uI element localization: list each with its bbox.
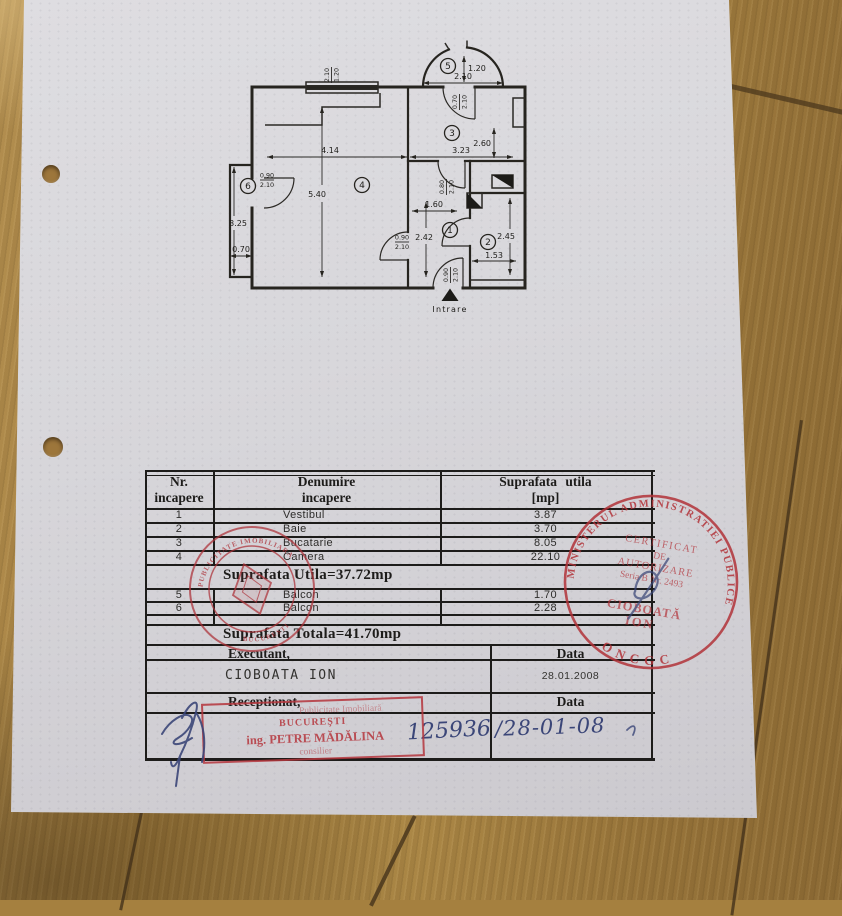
floor-plan-drawing: 4.14 5.40 3.23 2.60 1.60 2.42 2.45 1.53 … [220,30,540,330]
table-border [145,470,655,472]
row-nr: 6 [145,602,213,615]
room-number-4: 4 [355,178,370,193]
row-area: 3.87 [440,509,651,522]
row-area: 22.10 [440,551,651,564]
suprafata-utila-line: Suprafata Utila=37.72mp [223,567,648,584]
top-right-closet [513,98,525,127]
window-recess [265,93,380,125]
header-nr: Nr.incapere [145,474,213,506]
row-nr: 1 [145,509,213,522]
svg-text:2.10: 2.10 [395,243,409,251]
svg-text:0.70: 0.70 [451,95,459,109]
row-area: 3.70 [440,523,651,536]
dim-242: 2.42 [415,233,433,242]
dim-325: 3.25 [229,219,247,228]
row-nr: 2 [145,523,213,536]
svg-text:2.10: 2.10 [448,180,456,194]
dim-245: 2.45 [497,232,515,241]
handwritten-date: /28-01-08 [495,711,666,741]
svg-text:0.90: 0.90 [442,268,450,282]
row-nr: 5 [145,589,213,602]
door-label: 0.90 2.10 [442,267,460,283]
svg-text:6: 6 [245,182,251,192]
shaft-symbol [467,175,513,208]
room-number-5: 5 [441,59,456,74]
row-nr: 4 [145,551,213,564]
door-label: 0.90 2.10 [395,234,409,252]
data-label: Data [490,646,651,662]
window-label: 2.10 1.20 [323,67,341,83]
row-name: Vestibul [283,509,433,522]
room-number-3: 3 [445,126,460,141]
row-name: Balcon [283,602,433,615]
row-nr: 3 [145,537,213,550]
data-label: Data [490,694,651,710]
row-name: Camera [283,551,433,564]
date-value: 28.01.2008 [490,670,651,682]
svg-text:2.10: 2.10 [452,268,460,282]
dim-210: 2.10 [454,72,472,81]
row-area: 1.70 [440,589,651,602]
dim-260: 2.60 [473,139,491,148]
row-name: Balcon [283,589,433,602]
dim-160: 1.60 [425,200,443,209]
handwritten-number: 125936 [406,716,502,746]
door-label: 0.90 2.10 [260,172,274,190]
executant-label: Executant, [228,646,478,662]
balcony-5-arc [423,48,503,88]
dim-153: 1.53 [485,251,503,260]
room-number-1: 1 [443,223,458,238]
area-table: Nr.incapere Denumireincapere Suprafata u… [145,470,655,761]
row-area: 2.28 [440,602,651,615]
door-label: 0.80 2.10 [438,179,456,195]
svg-text:4: 4 [359,181,365,191]
document-paper: 4.14 5.40 3.23 2.60 1.60 2.42 2.45 1.53 … [0,0,842,900]
row-name: Baie [283,523,433,536]
row-area: 8.05 [440,537,651,550]
svg-text:0.90: 0.90 [260,172,274,180]
svg-text:5: 5 [445,62,451,72]
suprafata-totala-line: Suprafata Totala=41.70mp [223,626,648,643]
header-denumire: Denumireincapere [213,474,440,506]
entrance-arrow [442,289,459,302]
svg-text:1.20: 1.20 [333,68,341,82]
svg-text:0.90: 0.90 [395,234,409,242]
room-number-2: 2 [481,235,496,250]
svg-text:2: 2 [485,238,491,248]
dim-540: 5.40 [308,190,326,199]
floor-plank-seam [119,812,143,910]
svg-text:2.10: 2.10 [461,95,469,109]
door-balcony5 [443,87,475,119]
punch-hole [42,165,60,183]
dim-323: 3.23 [452,146,470,155]
balcony-5-railing-ticks [445,41,467,50]
dim-070: 0.70 [232,245,250,254]
dim-414: 4.14 [321,146,339,155]
floor-plank-seam [369,815,416,906]
entrance-label: Intrare [432,305,467,314]
punch-hole [43,437,63,457]
executant-name: CIOBOATA ION [225,668,505,683]
svg-text:1: 1 [447,226,453,236]
row-name: Bucatarie [283,537,433,550]
room-number-6: 6 [241,179,256,194]
receptionat-label: Receptionat, [228,694,478,710]
svg-text:2.10: 2.10 [323,68,331,82]
svg-text:0.80: 0.80 [438,180,446,194]
header-suprafata: Suprafata utila[mp] [440,474,651,506]
door-label: 0.70 2.10 [451,94,469,110]
svg-text:2.10: 2.10 [260,181,274,189]
svg-text:3: 3 [449,129,455,139]
